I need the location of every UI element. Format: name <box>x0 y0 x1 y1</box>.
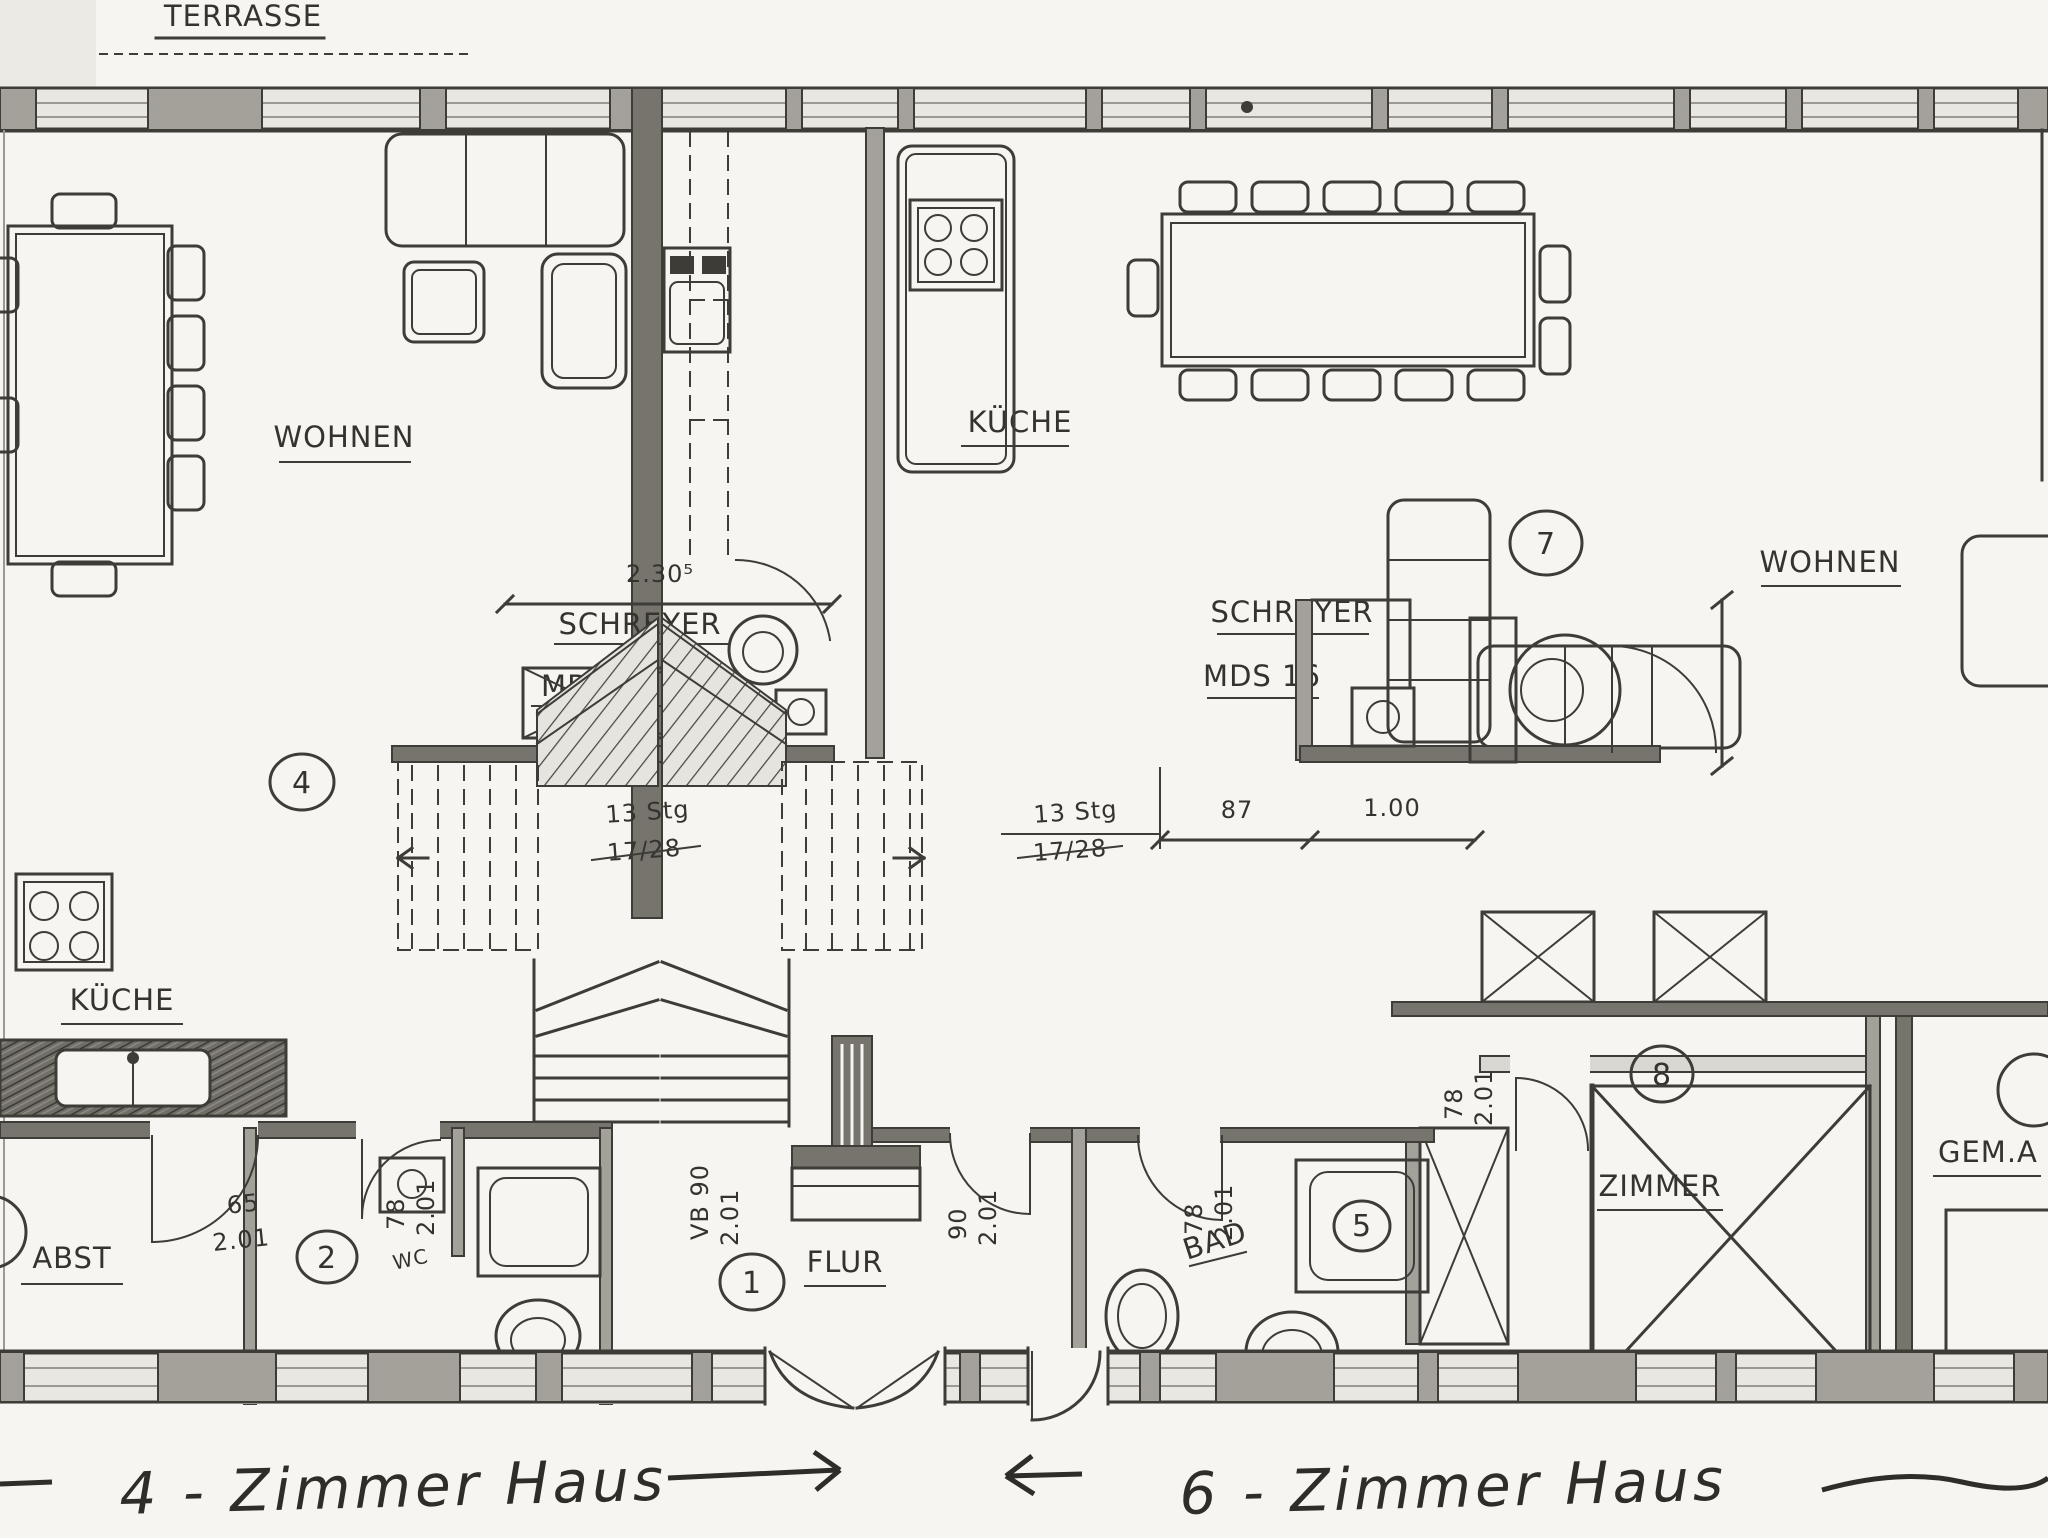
room-label-flur: FLUR <box>807 1245 884 1279</box>
svg-text:13 Stg: 13 Stg <box>1033 795 1119 829</box>
interior-wall <box>1296 600 1312 760</box>
caption-dash <box>0 1482 52 1484</box>
door-dim: 2.01 <box>1470 1069 1498 1126</box>
circle-number-2: 2 <box>317 1241 337 1276</box>
dim-100: 1.00 <box>1363 794 1420 822</box>
room-label-terrasse: TERRASSE <box>163 0 322 33</box>
door-dim: 2.01 <box>211 1223 271 1257</box>
caption-right-house: 6 - Zimmer Haus <box>1179 1446 1728 1528</box>
top-exterior-wall <box>0 88 2048 130</box>
door-dim: VB 90 <box>686 1164 714 1240</box>
wall-cap <box>792 1146 920 1168</box>
room-label-zimmer: ZIMMER <box>1599 1169 1722 1203</box>
circle-number-8: 8 <box>1652 1058 1672 1093</box>
interior-wall <box>1300 746 1660 762</box>
room-label-kueche-left: KÜCHE <box>70 983 175 1017</box>
circle-number-1: 1 <box>742 1266 762 1301</box>
svg-text:13 Stg: 13 Stg <box>605 795 691 829</box>
circle-number-5: 5 <box>1352 1209 1372 1244</box>
interior-wall <box>1392 1002 2048 1016</box>
faucet <box>127 1052 139 1064</box>
door-dim: 90 <box>944 1207 972 1240</box>
entrance-left-house <box>765 1348 945 1408</box>
door-dim: 78 <box>382 1197 410 1230</box>
door-dim: 65 <box>226 1188 261 1219</box>
scanned-floor-plan: TERRASSE <box>0 0 2048 1538</box>
door-dim: 2.01 <box>716 1189 744 1246</box>
circle-number-7: 7 <box>1536 527 1556 562</box>
dim-87: 87 <box>1221 796 1254 824</box>
caption-left-house: 4 - Zimmer Haus <box>119 1446 668 1528</box>
room-label-gem: GEM.A <box>1938 1135 2038 1169</box>
interior-wall <box>452 1128 464 1256</box>
interior-wall <box>1896 1016 1912 1352</box>
scan-shading <box>0 0 96 88</box>
wall-dot <box>1241 101 1253 113</box>
room-label-abst: ABST <box>32 1241 111 1275</box>
interior-wall <box>1866 1016 1880 1352</box>
door-dim: 78 <box>1440 1087 1468 1120</box>
room-label-wohnen-left: WOHNEN <box>273 420 414 454</box>
svg-text:17/28: 17/28 <box>1032 834 1108 867</box>
circle-number-4: 4 <box>292 766 312 801</box>
interior-wall <box>0 1122 612 1138</box>
room-label-wohnen-right: WOHNEN <box>1759 545 1900 579</box>
door-dim: 2.01 <box>974 1189 1002 1246</box>
floor-plan: TERRASSE <box>0 0 2048 1538</box>
dim-230: 2.30⁵ <box>626 560 694 588</box>
room-label-kueche-mid: KÜCHE <box>968 405 1073 439</box>
